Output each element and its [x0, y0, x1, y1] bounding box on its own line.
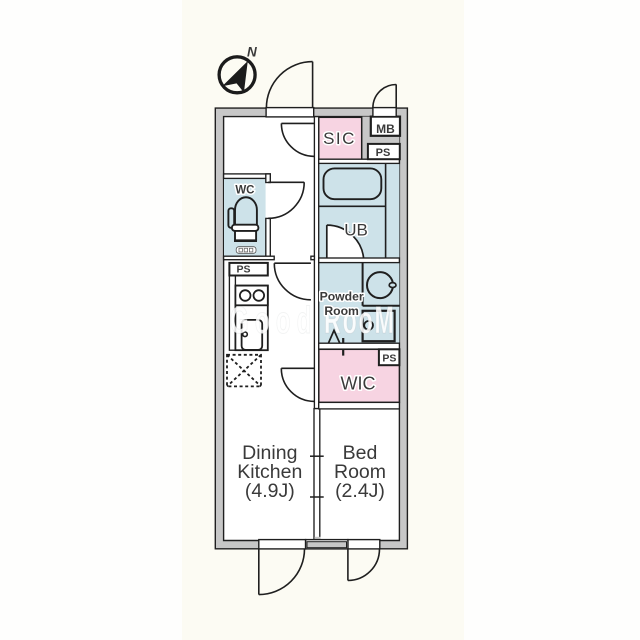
- svg-text:WC: WC: [235, 185, 254, 197]
- svg-text:PS: PS: [382, 353, 396, 365]
- svg-text:Room: Room: [324, 304, 359, 318]
- svg-text:SIC: SIC: [323, 129, 356, 148]
- svg-text:(2.4J): (2.4J): [335, 480, 385, 502]
- svg-text:PS: PS: [236, 264, 250, 276]
- svg-text:Powder: Powder: [320, 290, 364, 304]
- svg-text:MB: MB: [376, 122, 395, 136]
- svg-text:PS: PS: [376, 147, 391, 159]
- svg-text:(4.9J): (4.9J): [245, 480, 295, 502]
- svg-text:WIC: WIC: [341, 373, 376, 393]
- svg-text:N: N: [247, 45, 257, 60]
- svg-text:UB: UB: [344, 221, 368, 240]
- svg-text:Good: Good: [230, 298, 318, 341]
